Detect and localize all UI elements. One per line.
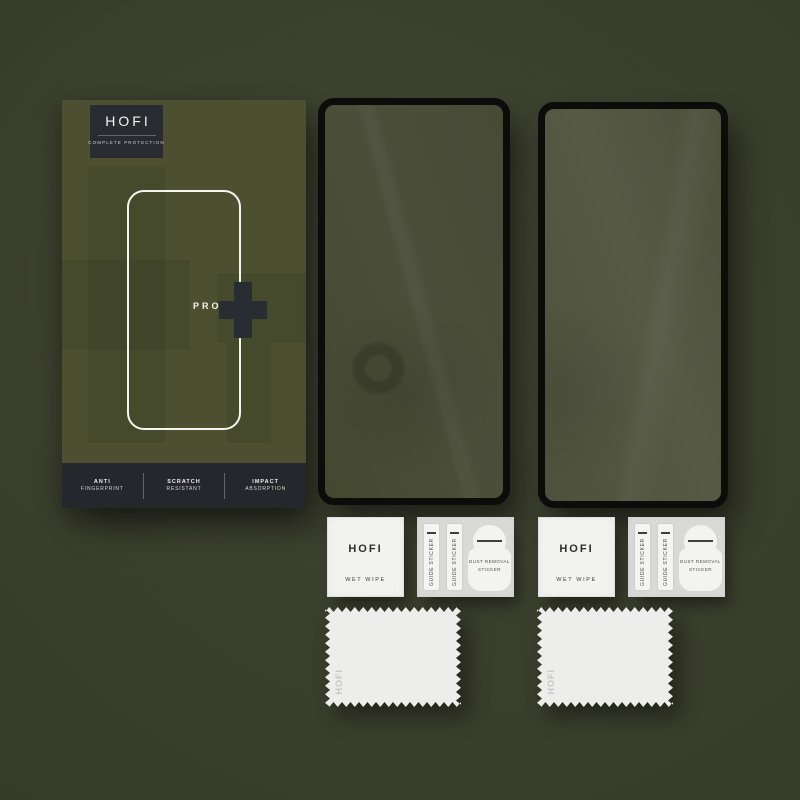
dust-removal-sticker: DUST REMOVAL STICKER: [679, 525, 722, 591]
sticker-panel-1: GUIDE STICKER GUIDE STICKER DUST REMOVAL…: [417, 517, 514, 597]
wet-wipe-label: WET WIPE: [345, 577, 386, 583]
plus-icon: [234, 282, 252, 338]
microfiber-cloth-2: HOFI: [537, 607, 673, 707]
brand-tagline: COMPLETE PROTECTION: [88, 140, 164, 145]
product-photo-stage: HOFI COMPLETE PROTECTION PRO ANTI FINGER…: [0, 0, 800, 800]
tempered-glass-1: [318, 98, 510, 505]
sticker-pull-line: [638, 532, 647, 534]
tempered-glass-2: [538, 102, 728, 508]
wet-wipe-label: WET WIPE: [556, 577, 597, 583]
wet-wipe-packet-1: HOFI WET WIPE: [327, 517, 404, 597]
series-label: PRO: [193, 302, 222, 311]
feature-impact-absorption: IMPACT ABSORPTION: [231, 478, 301, 494]
dust-removal-sticker: DUST REMOVAL STICKER: [468, 525, 511, 591]
brand-badge: HOFI COMPLETE PROTECTION: [90, 105, 163, 158]
guide-sticker: GUIDE STICKER: [658, 524, 673, 590]
guide-sticker: GUIDE STICKER: [424, 524, 439, 590]
features-strip: ANTI FINGERPRINT SCRATCH RESISTANT IMPAC…: [62, 463, 306, 508]
retail-box: HOFI COMPLETE PROTECTION PRO ANTI FINGER…: [62, 100, 306, 508]
microfiber-cloth-1: HOFI: [325, 607, 461, 707]
guide-sticker: GUIDE STICKER: [447, 524, 462, 590]
sticker-pull-line: [450, 532, 459, 534]
feature-separator: [224, 473, 225, 499]
hofi-logo: HOFI: [348, 544, 382, 555]
wet-wipe-packet-2: HOFI WET WIPE: [538, 517, 615, 597]
guide-sticker: GUIDE STICKER: [635, 524, 650, 590]
sticker-pull-line: [688, 540, 713, 542]
hofi-logo: HOFI: [105, 114, 150, 128]
hofi-logo: HOFI: [334, 669, 344, 695]
feature-anti-fingerprint: ANTI FINGERPRINT: [67, 478, 137, 494]
hofi-logo: HOFI: [559, 544, 593, 555]
hofi-logo: HOFI: [546, 669, 556, 695]
feature-scratch-resistant: SCRATCH RESISTANT: [149, 478, 219, 494]
sticker-pull-line: [661, 532, 670, 534]
sticker-pull-line: [427, 532, 436, 534]
sticker-panel-2: GUIDE STICKER GUIDE STICKER DUST REMOVAL…: [628, 517, 725, 597]
feature-separator: [143, 473, 144, 499]
badge-divider: [98, 135, 156, 136]
sticker-pull-line: [477, 540, 502, 542]
